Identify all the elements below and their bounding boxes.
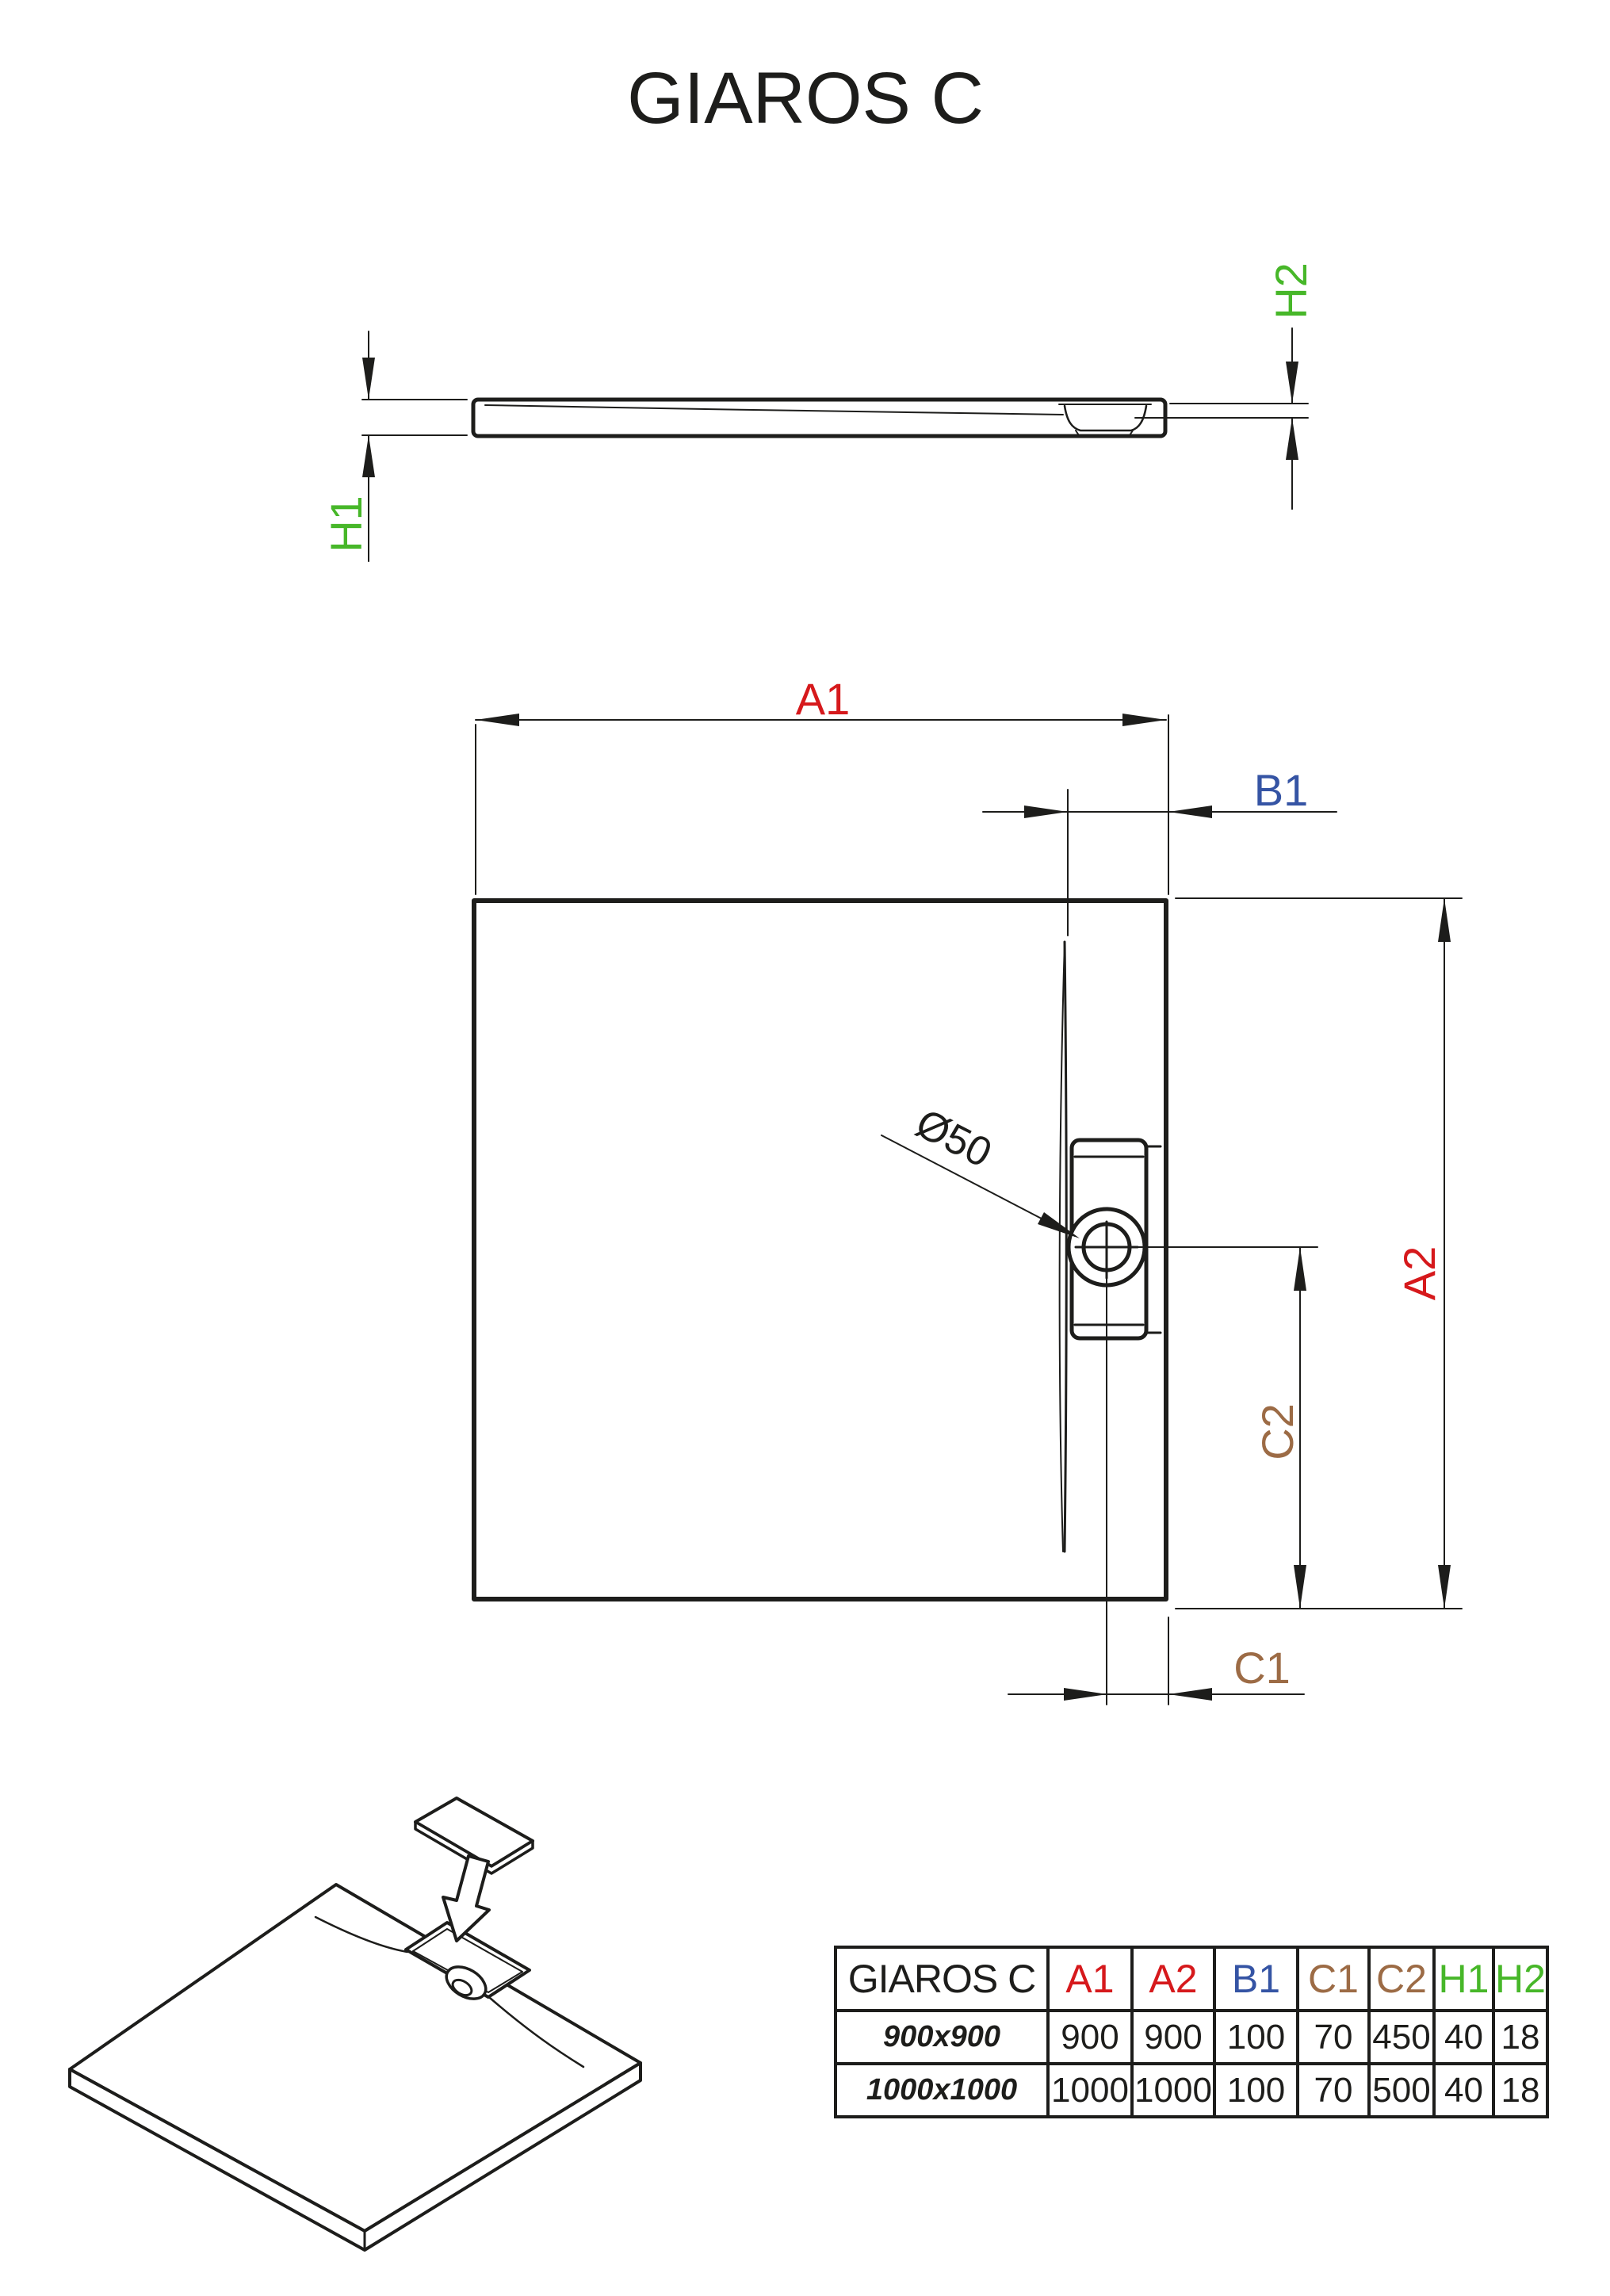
table-header-product: GIAROS C [836,1947,1048,2011]
table-header-b1: B1 [1214,1947,1298,2011]
table-cell: 900 [1048,2011,1132,2064]
dim-a1 [476,714,1168,894]
dim-label-b1: B1 [1254,768,1309,813]
table-cell: 100 [1214,2011,1298,2064]
table-cell: 100 [1214,2064,1298,2117]
table-header-h1: H1 [1434,1947,1493,2011]
table-cell: 450 [1369,2011,1434,2064]
table-row: 1000x1000 1000 1000 100 70 500 40 18 [836,2064,1547,2117]
table-cell: 1000 [1132,2064,1214,2117]
table-cell: 70 [1298,2011,1369,2064]
table-header-c2: C2 [1369,1947,1434,2011]
dimensions-table: GIAROS C A1 A2 B1 C1 C2 H1 H2 900x900 90… [834,1946,1549,2118]
table-cell: 40 [1434,2064,1493,2117]
dim-h2 [1135,328,1308,509]
table-cell: 70 [1298,2064,1369,2117]
table-header-row: GIAROS C A1 A2 B1 C1 C2 H1 H2 [836,1947,1547,2011]
dim-label-a2: A2 [1398,1246,1442,1301]
table-row: 900x900 900 900 100 70 450 40 18 [836,2011,1547,2064]
table-cell: 900 [1132,2011,1214,2064]
page-title: GIAROS C [627,57,984,140]
table-header-c1: C1 [1298,1947,1369,2011]
dim-h1 [362,331,467,561]
technical-drawing-page: GIAROS C H1 H2 A1 B1 A2 C2 C1 Ø50 GIAROS… [0,0,1610,2296]
table-cell: 40 [1434,2011,1493,2064]
table-size-cell: 900x900 [836,2011,1048,2064]
table-cell: 18 [1493,2011,1547,2064]
dim-label-h2: H2 [1269,262,1314,320]
dim-label-c1: C1 [1233,1646,1291,1690]
side-section-view [362,328,1308,561]
plan-view [474,714,1462,1705]
table-header-a2: A2 [1132,1947,1214,2011]
table-cell: 1000 [1048,2064,1132,2117]
table-cell: 500 [1369,2064,1434,2117]
drain-hole [1069,1209,1145,1285]
dim-label-c2: C2 [1256,1403,1300,1460]
table-header-h2: H2 [1493,1947,1547,2011]
table-header-a1: A1 [1048,1947,1132,2011]
table-cell: 18 [1493,2064,1547,2117]
dim-label-a1: A1 [796,677,851,721]
dim-label-h1: H1 [324,496,369,553]
isometric-view [70,1798,641,2250]
table-size-cell: 1000x1000 [836,2064,1048,2117]
